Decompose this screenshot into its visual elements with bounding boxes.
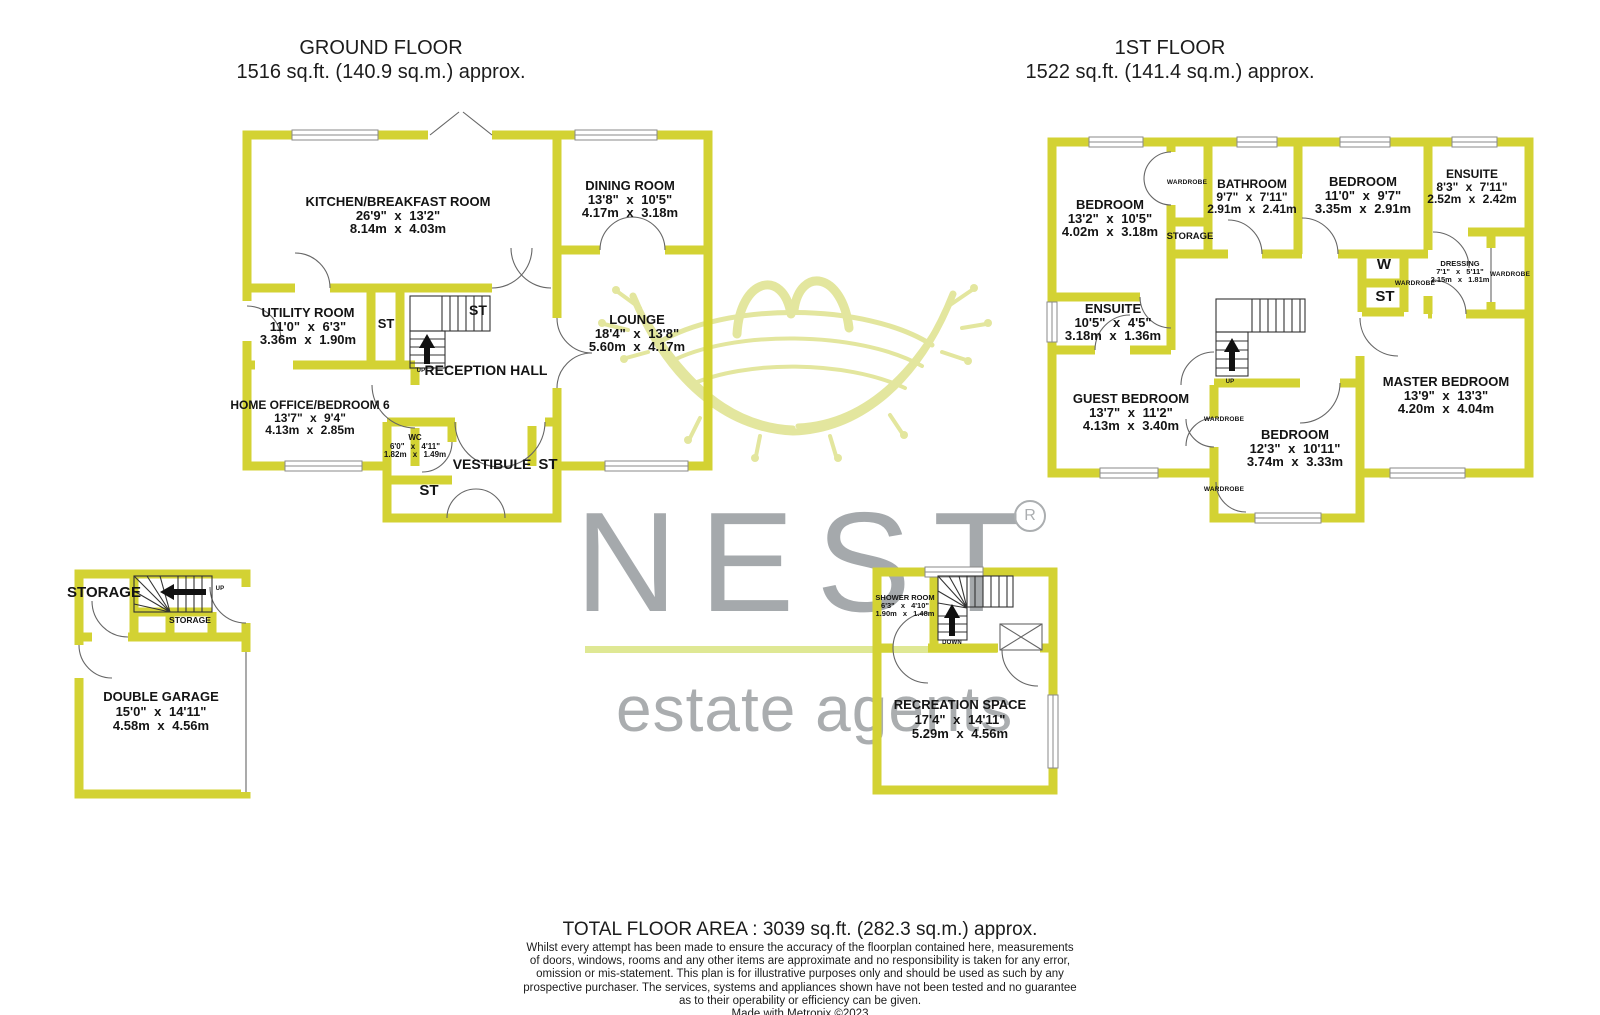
room-label-dressing: DRESSING7'1" x 5'11"2.15m x 1.81m xyxy=(1431,260,1490,284)
stair-arrows xyxy=(160,334,1240,636)
label-storage-garage-small: STORAGE xyxy=(169,615,211,625)
disclaimer-line: Whilst every attempt has been made to en… xyxy=(0,942,1600,955)
label-storage-garage-large: STORAGE xyxy=(67,584,141,601)
label-st-vestibule: ST xyxy=(538,456,557,473)
room-label-bedroom1: BEDROOM13'2" x 10'5"4.02m x 3.18m xyxy=(1062,198,1158,239)
label-wardrobe-bedroom3: WARDROBE xyxy=(1204,486,1244,493)
room-label-lounge: LOUNGE18'4" x 13'8"5.60m x 4.17m xyxy=(589,313,685,354)
metropix-credit: Made with Metropix ©2023 xyxy=(0,1008,1600,1015)
ground-floor-title: GROUND FLOOR 1516 sq.ft. (140.9 sq.m.) a… xyxy=(236,36,525,84)
label-wardrobe-bedroom1: WARDROBE xyxy=(1167,179,1207,186)
label-st-ff: ST xyxy=(1375,288,1394,305)
first-floor-title-line1: 1ST FLOOR xyxy=(1025,36,1314,60)
ground-floor-title-line2: 1516 sq.ft. (140.9 sq.m.) approx. xyxy=(236,60,525,84)
label-st-stairs: ST xyxy=(469,302,487,318)
first-floor-title: 1ST FLOOR 1522 sq.ft. (141.4 sq.m.) appr… xyxy=(1025,36,1314,84)
room-label-recreation-space: RECREATION SPACE17'4" x 14'11"5.29m x 4.… xyxy=(894,698,1026,742)
floorplan-page: NEST R estate agents xyxy=(0,0,1600,1015)
label-st-utility: ST xyxy=(378,316,395,331)
room-label-ensuite-left: ENSUITE10'5" x 4'5"3.18m x 1.36m xyxy=(1065,302,1161,343)
room-label-wc: WC6'0" x 4'11"1.82m x 1.49m xyxy=(384,434,446,460)
room-label-dining: DINING ROOM13'8" x 10'5"4.17m x 3.18m xyxy=(582,179,678,220)
label-wardrobe-dressing-right: WARDROBE xyxy=(1490,271,1530,278)
room-label-bedroom3: BEDROOM12'3" x 10'11"3.74m x 3.33m xyxy=(1247,428,1343,469)
room-label-bathroom: BATHROOM9'7" x 7'11"2.91m x 2.41m xyxy=(1207,178,1296,216)
label-down-rec: DOWN xyxy=(942,640,962,646)
first-floor-title-line2: 1522 sq.ft. (141.4 sq.m.) approx. xyxy=(1025,60,1314,84)
room-label-shower-room: SHOWER ROOM6'3" x 4'10"1.90m x 1.48m xyxy=(875,594,934,618)
disclaimer-line: of doors, windows, rooms and any other i… xyxy=(0,955,1600,968)
room-label-bedroom2: BEDROOM11'0" x 9'7"3.35m x 2.91m xyxy=(1315,175,1411,216)
label-up-garage: UP xyxy=(216,586,225,592)
label-w-closet: W xyxy=(1377,256,1391,273)
label-storage-ff: STORAGE xyxy=(1167,231,1214,242)
disclaimer-line: omission or mis-statement. This plan is … xyxy=(0,968,1600,981)
disclaimer-line: prospective purchaser. The services, sys… xyxy=(0,982,1600,995)
room-label-kitchen: KITCHEN/BREAKFAST ROOM26'9" x 13'2"8.14m… xyxy=(306,195,491,236)
label-st-wc: ST xyxy=(419,482,438,499)
label-wardrobe-dressing-left: WARDROBE xyxy=(1395,280,1435,287)
room-label-guest-bedroom: GUEST BEDROOM13'7" x 11'2"4.13m x 3.40m xyxy=(1073,392,1189,433)
room-label-double-garage: DOUBLE GARAGE15'0" x 14'11"4.58m x 4.56m xyxy=(103,690,219,734)
label-up-gf: UP xyxy=(417,368,426,374)
label-up-ff: UP xyxy=(1226,379,1235,385)
room-label-home-office: HOME OFFICE/BEDROOM 613'7" x 9'4"4.13m x… xyxy=(230,399,389,437)
label-vestibule: VESTIBULE xyxy=(453,456,532,472)
footer: TOTAL FLOOR AREA : 3039 sq.ft. (282.3 sq… xyxy=(0,918,1600,1015)
label-wardrobe-guest: WARDROBE xyxy=(1204,416,1244,423)
label-reception-hall: RECEPTION HALL xyxy=(425,362,548,378)
room-label-utility: UTILITY ROOM11'0" x 6'3"3.36m x 1.90m xyxy=(260,306,356,347)
ground-floor-title-line1: GROUND FLOOR xyxy=(236,36,525,60)
total-floor-area: TOTAL FLOOR AREA : 3039 sq.ft. (282.3 sq… xyxy=(0,918,1600,942)
floorplan-walls xyxy=(0,0,1600,1015)
disclaimer-line: as to their operability or efficiency ca… xyxy=(0,995,1600,1008)
room-label-master-bedroom: MASTER BEDROOM13'9" x 13'3"4.20m x 4.04m xyxy=(1383,375,1509,416)
room-label-ensuite-top: ENSUITE8'3" x 7'11"2.52m x 2.42m xyxy=(1427,168,1516,206)
